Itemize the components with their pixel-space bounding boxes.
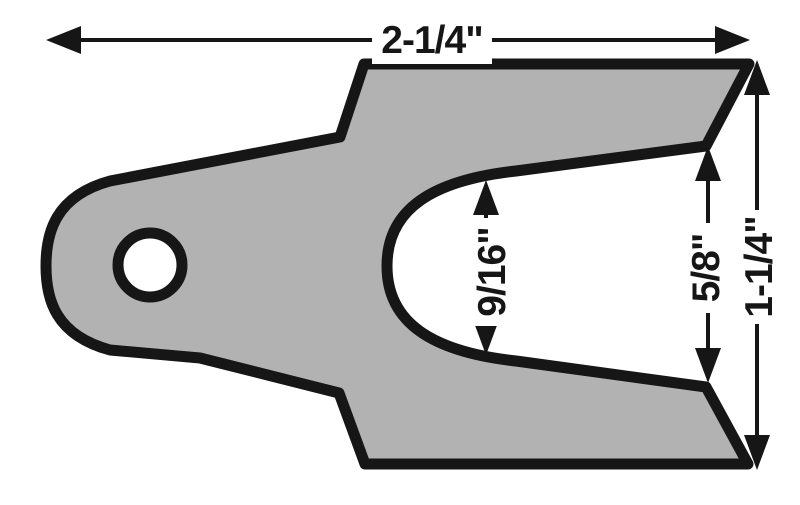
dimension-overall-width: 2-1/4" [46,15,750,64]
mounting-hole [118,233,182,297]
shim-diagram-svg: 2-1/4" 9/16" 5/8" [0,0,800,505]
dimension-slot-width: 9/16" [469,180,515,355]
overall-width-arrow-right-icon [715,26,750,54]
overall-height-label: 1-1/4" [738,216,781,317]
overall-width-arrow-left-icon [46,26,81,54]
technical-drawing: 2-1/4" 9/16" 5/8" [0,0,800,505]
dimension-opening-width: 5/8" [683,146,729,383]
opening-width-arrow-down-icon [695,348,721,383]
overall-width-label: 2-1/4" [381,19,482,62]
slot-width-arrow-up-icon [473,180,499,215]
slot-width-label: 9/16" [471,227,514,316]
dimension-overall-height: 1-1/4" [736,60,782,470]
opening-width-label: 5/8" [685,234,728,303]
